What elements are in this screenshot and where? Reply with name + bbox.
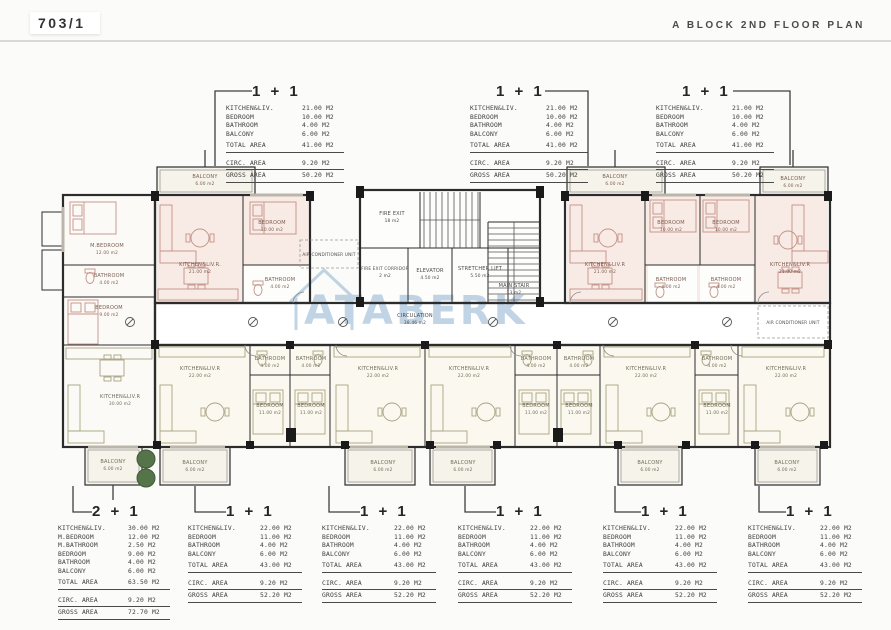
room-label: BEDROOM: [258, 220, 286, 226]
room-label: BATHROOM: [265, 277, 296, 283]
room-area: 6.00 m2: [777, 467, 796, 473]
circ-area-row: CIRC. AREA9.20 M2: [470, 160, 588, 171]
room-area: 4.00 m2: [569, 363, 588, 369]
area-label: CIRC. AREA: [603, 580, 675, 589]
area-label: GROSS AREA: [656, 172, 732, 181]
area-label: CIRC. AREA: [748, 580, 820, 589]
area-row: BALCONY6.00 M2: [458, 551, 572, 560]
area-label: CIRC. AREA: [226, 160, 302, 169]
ac-unit-label: AIR CONDITIONER UNIT: [302, 252, 355, 257]
room-area: 4.00 m2: [99, 280, 118, 286]
room-label: FIRE EXIT: [379, 211, 405, 217]
total-area-row: TOTAL AREA43.00 M2: [603, 562, 717, 573]
room-area: 6.00 m2: [605, 181, 624, 187]
area-label: BATHROOM: [470, 122, 546, 131]
area-label: BATHROOM: [656, 122, 732, 131]
area-label: BEDROOM: [458, 534, 530, 543]
area-value: 12.00 M2: [128, 534, 170, 543]
area-row: KITCHEN&LIV.30.00 M2: [58, 525, 170, 534]
area-row: M.BATHROOM2.50 M2: [58, 542, 170, 551]
total-area-row: TOTAL AREA43.00 M2: [458, 562, 572, 573]
room-label: BALCONY: [780, 176, 806, 182]
area-row: KITCHEN&LIV.22.00 M2: [322, 525, 436, 534]
room-label: BALCONY: [182, 460, 208, 466]
area-row: BALCONY6.00 M2: [58, 568, 170, 577]
area-value: 6.00 M2: [302, 131, 344, 140]
room-label: KITCHEN&LIV.R: [766, 366, 807, 372]
gross-area-row: GROSS AREA52.20 M2: [188, 592, 302, 603]
room-label: BATHROOM: [564, 356, 595, 362]
area-label: KITCHEN&LIV.: [656, 105, 732, 114]
area-row: BATHROOM4.00 M2: [188, 542, 302, 551]
room-area: 4.00 m2: [707, 363, 726, 369]
room-area: 6.00 m2: [453, 467, 472, 473]
room-area: 11.00 m2: [259, 410, 281, 416]
area-value: 50.20 M2: [732, 172, 774, 181]
area-value: 6.00 M2: [546, 131, 588, 140]
total-area-row: TOTAL AREA41.00 M2: [226, 142, 344, 153]
room-label: KITCHEN&LIV.R: [770, 262, 811, 268]
area-value: 6.00 M2: [820, 551, 862, 560]
room-label: BATHROOM: [656, 277, 687, 283]
unit-table-bottom-6: 1 + 1 KITCHEN&LIV.22.00 M2 BEDROOM11.00 …: [748, 503, 862, 603]
area-label: CIRC. AREA: [470, 160, 546, 169]
area-row: BEDROOM10.00 M2: [656, 114, 774, 123]
total-area-row: TOTAL AREA43.00 M2: [188, 562, 302, 573]
room-area: 22.00 m2: [367, 373, 389, 379]
unit-type-title: 1 + 1: [603, 503, 717, 520]
area-value: 9.20 M2: [394, 580, 436, 589]
area-row: BEDROOM10.00 M2: [226, 114, 344, 123]
room-label: KITCHEN&LIV.R: [100, 394, 141, 400]
room-area: 6.00 m2: [195, 181, 214, 187]
area-label: KITCHEN&LIV.: [226, 105, 302, 114]
area-label: GROSS AREA: [58, 609, 128, 618]
area-value: 9.20 M2: [302, 160, 344, 169]
area-value: 4.00 M2: [732, 122, 774, 131]
area-value: 41.00 M2: [546, 142, 588, 151]
room-label: BALCONY: [602, 174, 628, 180]
circ-area-row: CIRC. AREA9.20 M2: [188, 580, 302, 591]
room-area: 9.00 m2: [99, 312, 118, 318]
circ-area-row: CIRC. AREA9.20 M2: [226, 160, 344, 171]
area-value: 6.00 M2: [394, 551, 436, 560]
area-label: BATHROOM: [58, 559, 128, 568]
area-label: CIRC. AREA: [322, 580, 394, 589]
total-area-row: TOTAL AREA41.00 M2: [656, 142, 774, 153]
area-value: 9.20 M2: [128, 597, 170, 606]
area-value: 22.00 M2: [260, 525, 302, 534]
unit-type-title: 1 + 1: [188, 503, 302, 520]
area-value: 52.20 M2: [530, 592, 572, 601]
area-row: BATHROOM4.00 M2: [470, 122, 588, 131]
area-row: BEDROOM11.00 M2: [188, 534, 302, 543]
area-value: 6.00 M2: [530, 551, 572, 560]
circ-area-row: CIRC. AREA9.20 M2: [458, 580, 572, 591]
room-area: 22.00 m2: [458, 373, 480, 379]
room-area: 11.00 m2: [300, 410, 322, 416]
area-row: KITCHEN&LIV.22.00 M2: [603, 525, 717, 534]
area-value: 4.00 M2: [530, 542, 572, 551]
room-label: ELEVATOR: [416, 268, 444, 274]
unit-table-top-2: 1 + 1 KITCHEN&LIV.21.00 M2 BEDROOM10.00 …: [470, 83, 588, 183]
area-label: BEDROOM: [603, 534, 675, 543]
unit-table-bottom-2: 1 + 1 KITCHEN&LIV.22.00 M2 BEDROOM11.00 …: [188, 503, 302, 603]
area-label: BALCONY: [603, 551, 675, 560]
area-row: BATHROOM4.00 M2: [458, 542, 572, 551]
room-area: 5.50 m2: [470, 273, 489, 279]
area-value: 2.50 M2: [128, 542, 170, 551]
area-label: GROSS AREA: [603, 592, 675, 601]
area-label: BEDROOM: [58, 551, 128, 560]
area-value: 4.00 M2: [260, 542, 302, 551]
area-row: BALCONY6.00 M2: [226, 131, 344, 140]
area-label: KITCHEN&LIV.: [58, 525, 128, 534]
area-label: TOTAL AREA: [748, 562, 820, 571]
room-area: 4.00 m2: [260, 363, 279, 369]
room-area: 4.00 m2: [526, 363, 545, 369]
watermark-text: ATABERK: [304, 288, 528, 334]
room-label: BEDROOM: [703, 403, 731, 409]
circ-area-row: CIRC. AREA9.20 M2: [603, 580, 717, 591]
room-label: BALCONY: [370, 460, 396, 466]
room-label: KITCHEN&LIV.R: [180, 366, 221, 372]
gross-area-row: GROSS AREA72.70 M2: [58, 609, 170, 620]
total-area-row: TOTAL AREA63.50 M2: [58, 579, 170, 590]
room-area: 4.00 m2: [301, 363, 320, 369]
room-area: 6.00 m2: [103, 466, 122, 472]
area-row: BALCONY6.00 M2: [470, 131, 588, 140]
area-value: 63.50 M2: [128, 579, 170, 588]
room-label: BEDROOM: [565, 403, 593, 409]
area-label: BALCONY: [470, 131, 546, 140]
room-area: 6.00 m2: [185, 467, 204, 473]
area-value: 43.00 M2: [530, 562, 572, 571]
area-row: BALCONY6.00 M2: [188, 551, 302, 560]
area-value: 4.00 M2: [675, 542, 717, 551]
total-area-row: TOTAL AREA41.00 M2: [470, 142, 588, 153]
area-row: KITCHEN&LIV.21.00 M2: [470, 105, 588, 114]
area-label: CIRC. AREA: [188, 580, 260, 589]
area-label: BATHROOM: [226, 122, 302, 131]
area-row: M.BEDROOM12.00 M2: [58, 534, 170, 543]
area-row: KITCHEN&LIV.22.00 M2: [748, 525, 862, 534]
area-label: TOTAL AREA: [322, 562, 394, 571]
area-row: BATHROOM4.00 M2: [322, 542, 436, 551]
area-value: 9.20 M2: [675, 580, 717, 589]
area-label: CIRC. AREA: [58, 597, 128, 606]
area-value: 21.00 M2: [732, 105, 774, 114]
area-value: 21.00 M2: [546, 105, 588, 114]
area-row: BATHROOM4.00 M2: [58, 559, 170, 568]
area-value: 10.00 M2: [546, 114, 588, 123]
area-label: KITCHEN&LIV.: [470, 105, 546, 114]
area-row: BATHROOM4.00 M2: [656, 122, 774, 131]
area-label: GROSS AREA: [226, 172, 302, 181]
room-area: 4.00 m2: [716, 284, 735, 290]
room-label: BALCONY: [637, 460, 663, 466]
total-area-row: TOTAL AREA43.00 M2: [322, 562, 436, 573]
area-label: TOTAL AREA: [226, 142, 302, 151]
area-value: 6.00 M2: [128, 568, 170, 577]
gross-area-row: GROSS AREA52.20 M2: [322, 592, 436, 603]
room-area: 10.00 m2: [660, 227, 682, 233]
room-label: BEDROOM: [256, 403, 284, 409]
area-row: BALCONY6.00 M2: [322, 551, 436, 560]
room-area: 38.46 m2: [404, 320, 426, 326]
area-value: 11.00 M2: [675, 534, 717, 543]
room-label: BEDROOM: [522, 403, 550, 409]
room-area: 21.00 m2: [779, 269, 801, 275]
area-row: KITCHEN&LIV.21.00 M2: [226, 105, 344, 114]
unit-type-title: 1 + 1: [470, 83, 588, 100]
area-value: 72.70 M2: [128, 609, 170, 618]
area-label: BATHROOM: [603, 542, 675, 551]
area-label: BATHROOM: [458, 542, 530, 551]
area-value: 52.20 M2: [820, 592, 862, 601]
area-label: BALCONY: [322, 551, 394, 560]
room-label: BEDROOM: [657, 220, 685, 226]
area-value: 52.20 M2: [394, 592, 436, 601]
area-label: TOTAL AREA: [58, 579, 128, 588]
area-row: KITCHEN&LIV.22.00 M2: [188, 525, 302, 534]
area-label: BEDROOM: [322, 534, 394, 543]
area-value: 9.20 M2: [260, 580, 302, 589]
circ-area-row: CIRC. AREA9.20 M2: [322, 580, 436, 591]
area-value: 11.00 M2: [394, 534, 436, 543]
area-label: GROSS AREA: [458, 592, 530, 601]
room-label: BALCONY: [192, 174, 218, 180]
room-label: BATHROOM: [296, 356, 327, 362]
room-area: 22.00 m2: [775, 373, 797, 379]
room-label: KITCHEN&LIV.R.: [179, 262, 221, 268]
area-row: BEDROOM11.00 M2: [458, 534, 572, 543]
area-label: BEDROOM: [748, 534, 820, 543]
area-label: BALCONY: [188, 551, 260, 560]
unit-type-title: 1 + 1: [656, 83, 774, 100]
ac-unit-label: AIR CONDITIONER UNIT: [766, 320, 819, 325]
room-area: 2 m2: [379, 273, 391, 279]
room-label: BEDROOM: [95, 305, 123, 311]
area-value: 21.00 M2: [302, 105, 344, 114]
area-label: KITCHEN&LIV.: [603, 525, 675, 534]
room-label: BATHROOM: [521, 356, 552, 362]
area-label: TOTAL AREA: [470, 142, 546, 151]
area-value: 11.00 M2: [820, 534, 862, 543]
room-area: 21.00 m2: [594, 269, 616, 275]
room-label: BATHROOM: [711, 277, 742, 283]
area-label: BALCONY: [226, 131, 302, 140]
total-area-row: TOTAL AREA43.00 M2: [748, 562, 862, 573]
room-label: KITCHEN&LIV.R: [449, 366, 490, 372]
room-area: 6.00 m2: [783, 183, 802, 189]
room-label: BATHROOM: [702, 356, 733, 362]
gross-area-row: GROSS AREA52.20 M2: [458, 592, 572, 603]
room-label: KITCHEN&LIV.R: [358, 366, 399, 372]
area-value: 52.20 M2: [260, 592, 302, 601]
area-row: BEDROOM9.00 M2: [58, 551, 170, 560]
area-value: 43.00 M2: [260, 562, 302, 571]
area-label: CIRC. AREA: [458, 580, 530, 589]
area-row: BATHROOM4.00 M2: [748, 542, 862, 551]
area-value: 11.00 M2: [530, 534, 572, 543]
area-value: 22.00 M2: [394, 525, 436, 534]
room-area: 22.00 m2: [635, 373, 657, 379]
room-area: 4.00 m2: [270, 284, 289, 290]
area-row: KITCHEN&LIV.22.00 M2: [458, 525, 572, 534]
area-value: 10.00 M2: [302, 114, 344, 123]
gross-area-row: GROSS AREA50.20 M2: [656, 172, 774, 183]
room-area: 12.00 m2: [96, 250, 118, 256]
unit-type-title: 1 + 1: [322, 503, 436, 520]
area-label: BATHROOM: [322, 542, 394, 551]
room-area: 18 m2: [385, 218, 400, 224]
area-label: GROSS AREA: [748, 592, 820, 601]
area-label: BALCONY: [458, 551, 530, 560]
area-label: CIRC. AREA: [656, 160, 732, 169]
room-area: 13 m2: [507, 290, 522, 296]
area-value: 30.00 M2: [128, 525, 170, 534]
room-area: 6.00 m2: [640, 467, 659, 473]
area-label: GROSS AREA: [188, 592, 260, 601]
area-value: 6.00 M2: [675, 551, 717, 560]
area-label: BEDROOM: [226, 114, 302, 123]
area-label: KITCHEN&LIV.: [458, 525, 530, 534]
area-label: BATHROOM: [748, 542, 820, 551]
room-label: M.BEDROOM: [90, 243, 124, 249]
room-label: CIRCULATION: [397, 313, 433, 319]
unit-table-top-3: 1 + 1 KITCHEN&LIV.21.00 M2 BEDROOM10.00 …: [656, 83, 774, 183]
area-row: BATHROOM4.00 M2: [226, 122, 344, 131]
area-row: BEDROOM10.00 M2: [470, 114, 588, 123]
area-row: BEDROOM11.00 M2: [603, 534, 717, 543]
room-area: 21.00 m2: [189, 269, 211, 275]
area-label: KITCHEN&LIV.: [748, 525, 820, 534]
room-area: 11.00 m2: [706, 410, 728, 416]
area-value: 4.00 M2: [302, 122, 344, 131]
area-value: 43.00 M2: [394, 562, 436, 571]
area-value: 43.00 M2: [675, 562, 717, 571]
unit-table-top-1: 1 + 1 KITCHEN&LIV.21.00 M2 BEDROOM10.00 …: [226, 83, 344, 183]
room-label: KITCHEN&LIV.R: [626, 366, 667, 372]
gross-area-row: GROSS AREA50.20 M2: [226, 172, 344, 183]
gross-area-row: GROSS AREA52.20 M2: [748, 592, 862, 603]
room-area: 4.00 m2: [661, 284, 680, 290]
area-value: 11.00 M2: [260, 534, 302, 543]
room-label: BATHROOM: [255, 356, 286, 362]
area-label: BEDROOM: [470, 114, 546, 123]
area-label: TOTAL AREA: [603, 562, 675, 571]
area-label: M.BATHROOM: [58, 542, 128, 551]
area-label: GROSS AREA: [470, 172, 546, 181]
area-value: 9.00 M2: [128, 551, 170, 560]
circ-area-row: CIRC. AREA9.20 M2: [58, 597, 170, 608]
room-label: BATHROOM: [94, 273, 125, 279]
gross-area-row: GROSS AREA50.20 M2: [470, 172, 588, 183]
room-label: MAIN STAIR: [499, 283, 530, 289]
area-label: TOTAL AREA: [656, 142, 732, 151]
area-value: 4.00 M2: [820, 542, 862, 551]
area-label: BALCONY: [58, 568, 128, 577]
area-label: GROSS AREA: [322, 592, 394, 601]
area-value: 4.00 M2: [128, 559, 170, 568]
area-label: BATHROOM: [188, 542, 260, 551]
area-label: TOTAL AREA: [188, 562, 260, 571]
area-value: 22.00 M2: [675, 525, 717, 534]
room-label: STRETCHER LIFT: [458, 266, 503, 272]
area-row: BATHROOM4.00 M2: [603, 542, 717, 551]
area-label: KITCHEN&LIV.: [322, 525, 394, 534]
room-area: 11.00 m2: [525, 410, 547, 416]
room-area: 11.00 m2: [568, 410, 590, 416]
area-value: 6.00 M2: [260, 551, 302, 560]
area-value: 9.20 M2: [732, 160, 774, 169]
area-value: 9.20 M2: [530, 580, 572, 589]
unit-type-title: 1 + 1: [748, 503, 862, 520]
area-label: KITCHEN&LIV.: [188, 525, 260, 534]
room-area: 10.00 m2: [715, 227, 737, 233]
area-row: BEDROOM11.00 M2: [748, 534, 862, 543]
unit-table-bottom-5: 1 + 1 KITCHEN&LIV.22.00 M2 BEDROOM11.00 …: [603, 503, 717, 603]
area-value: 4.00 M2: [394, 542, 436, 551]
room-label: BALCONY: [100, 459, 126, 465]
area-value: 43.00 M2: [820, 562, 862, 571]
area-value: 41.00 M2: [302, 142, 344, 151]
area-value: 50.20 M2: [302, 172, 344, 181]
room-area: 6.00 m2: [373, 467, 392, 473]
unit-table-bottom-3: 1 + 1 KITCHEN&LIV.22.00 M2 BEDROOM11.00 …: [322, 503, 436, 603]
area-value: 22.00 M2: [820, 525, 862, 534]
room-label: BALCONY: [774, 460, 800, 466]
area-value: 10.00 M2: [732, 114, 774, 123]
area-label: M.BEDROOM: [58, 534, 128, 543]
room-area: 10.00 m2: [261, 227, 283, 233]
area-label: BEDROOM: [656, 114, 732, 123]
unit-type-title: 2 + 1: [58, 503, 170, 520]
room-area: 22.00 m2: [189, 373, 211, 379]
floor-plan-sheet: 703/1 A BLOCK 2ND FLOOR PLAN: [0, 0, 891, 630]
circ-area-row: CIRC. AREA9.20 M2: [656, 160, 774, 171]
area-value: 52.20 M2: [675, 592, 717, 601]
area-label: BALCONY: [748, 551, 820, 560]
room-label: BALCONY: [450, 460, 476, 466]
area-value: 4.00 M2: [546, 122, 588, 131]
unit-type-title: 1 + 1: [458, 503, 572, 520]
room-area: 4.50 m2: [420, 275, 439, 281]
room-label: BEDROOM: [297, 403, 325, 409]
unit-table-bottom-1: 2 + 1 KITCHEN&LIV.30.00 M2 M.BEDROOM12.0…: [58, 503, 170, 620]
area-row: BALCONY6.00 M2: [748, 551, 862, 560]
area-label: BALCONY: [656, 131, 732, 140]
area-value: 9.20 M2: [546, 160, 588, 169]
room-label: FIRE EXIT CORRIDOR: [361, 266, 408, 271]
area-value: 50.20 M2: [546, 172, 588, 181]
unit-table-bottom-4: 1 + 1 KITCHEN&LIV.22.00 M2 BEDROOM11.00 …: [458, 503, 572, 603]
area-row: BEDROOM11.00 M2: [322, 534, 436, 543]
circ-area-row: CIRC. AREA9.20 M2: [748, 580, 862, 591]
room-label: BEDROOM: [712, 220, 740, 226]
area-value: 9.20 M2: [820, 580, 862, 589]
room-label: KITCHEN&LIV.R: [585, 262, 626, 268]
area-value: 41.00 M2: [732, 142, 774, 151]
room-area: 30.00 m2: [109, 401, 131, 407]
area-label: BEDROOM: [188, 534, 260, 543]
area-label: TOTAL AREA: [458, 562, 530, 571]
gross-area-row: GROSS AREA52.20 M2: [603, 592, 717, 603]
area-row: BALCONY6.00 M2: [603, 551, 717, 560]
area-row: KITCHEN&LIV.21.00 M2: [656, 105, 774, 114]
area-value: 6.00 M2: [732, 131, 774, 140]
